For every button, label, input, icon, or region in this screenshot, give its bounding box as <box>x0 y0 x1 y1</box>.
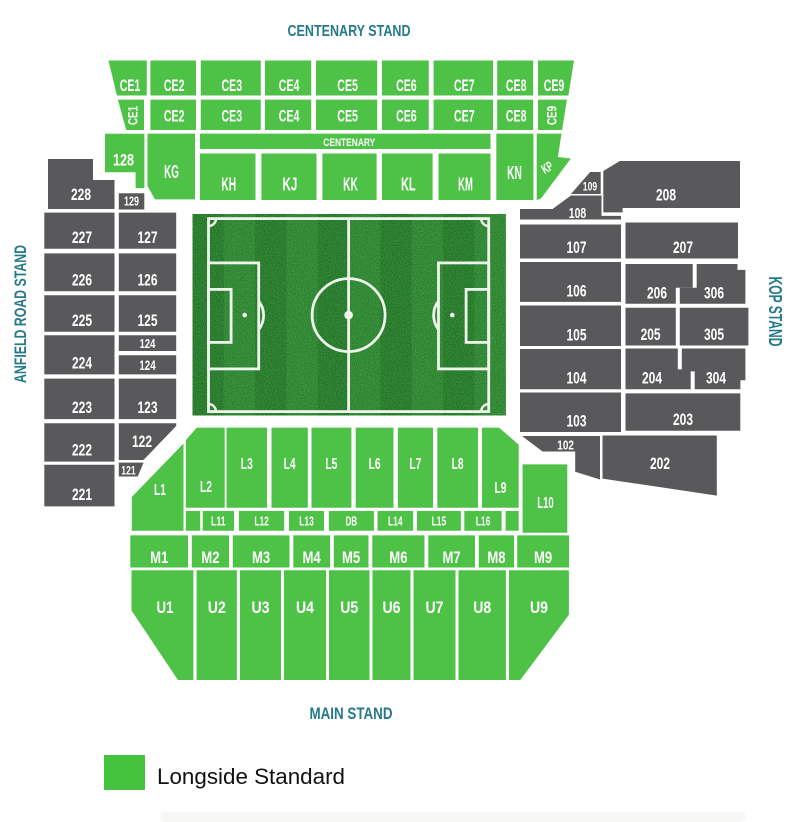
svg-text:L6: L6 <box>369 456 381 473</box>
svg-text:CE2: CE2 <box>164 77 185 95</box>
svg-text:KOP STAND: KOP STAND <box>765 277 785 347</box>
svg-text:KK: KK <box>343 175 358 195</box>
svg-text:L10: L10 <box>537 495 554 512</box>
svg-text:103: 103 <box>567 413 587 431</box>
svg-text:Longside Standard: Longside Standard <box>157 764 345 789</box>
svg-text:CE4: CE4 <box>279 77 300 95</box>
svg-text:108: 108 <box>569 206 586 222</box>
svg-text:L9: L9 <box>495 480 507 497</box>
svg-text:M6: M6 <box>389 548 407 567</box>
svg-text:208: 208 <box>656 187 676 205</box>
svg-text:U9: U9 <box>530 598 548 617</box>
svg-text:CENTENARY STAND: CENTENARY STAND <box>288 23 411 40</box>
svg-text:U1: U1 <box>157 598 174 617</box>
svg-text:KG: KG <box>164 162 179 182</box>
svg-text:206: 206 <box>647 285 667 303</box>
svg-text:U2: U2 <box>208 598 226 617</box>
svg-text:129: 129 <box>124 194 139 209</box>
svg-text:CE9: CE9 <box>544 77 565 95</box>
svg-text:M9: M9 <box>534 548 552 567</box>
svg-text:305: 305 <box>704 326 724 344</box>
svg-text:M2: M2 <box>201 548 219 567</box>
svg-text:CE2: CE2 <box>164 108 185 126</box>
svg-text:105: 105 <box>567 327 587 345</box>
svg-text:CE3: CE3 <box>222 77 243 95</box>
svg-text:CE7: CE7 <box>454 108 475 126</box>
svg-text:L3: L3 <box>241 456 253 473</box>
svg-text:L14: L14 <box>388 515 403 529</box>
svg-text:U6: U6 <box>383 598 401 617</box>
svg-text:U5: U5 <box>340 598 358 617</box>
svg-text:KL: KL <box>401 175 416 195</box>
svg-text:224: 224 <box>72 355 93 373</box>
svg-text:226: 226 <box>72 272 92 290</box>
svg-text:CE5: CE5 <box>337 108 358 126</box>
svg-text:KN: KN <box>507 163 522 183</box>
svg-text:U3: U3 <box>252 598 270 617</box>
svg-text:228: 228 <box>71 186 91 204</box>
svg-text:CENTENARY: CENTENARY <box>323 137 376 149</box>
svg-text:202: 202 <box>650 455 670 473</box>
svg-text:123: 123 <box>138 399 158 417</box>
svg-text:L4: L4 <box>284 456 296 473</box>
svg-text:L11: L11 <box>211 515 226 529</box>
svg-text:M4: M4 <box>303 548 322 567</box>
svg-text:MAIN STAND: MAIN STAND <box>310 704 393 723</box>
svg-text:CE9: CE9 <box>545 106 560 125</box>
svg-text:L13: L13 <box>299 515 314 529</box>
svg-text:KH: KH <box>221 175 236 195</box>
svg-text:225: 225 <box>72 312 92 330</box>
svg-text:223: 223 <box>72 399 92 417</box>
svg-text:122: 122 <box>132 433 152 451</box>
svg-text:L16: L16 <box>476 515 491 529</box>
svg-text:KJ: KJ <box>283 175 298 195</box>
svg-text:ANFIELD ROAD STAND: ANFIELD ROAD STAND <box>11 245 30 383</box>
svg-text:128: 128 <box>113 152 134 170</box>
svg-text:CE3: CE3 <box>222 108 243 126</box>
svg-text:CE4: CE4 <box>279 108 300 126</box>
svg-text:L5: L5 <box>325 456 337 473</box>
svg-text:L8: L8 <box>452 456 464 473</box>
svg-text:127: 127 <box>138 229 158 247</box>
svg-text:207: 207 <box>673 239 693 257</box>
svg-text:304: 304 <box>706 370 727 388</box>
svg-text:222: 222 <box>72 442 92 460</box>
svg-text:221: 221 <box>72 486 92 504</box>
svg-text:CE6: CE6 <box>396 108 417 126</box>
svg-text:203: 203 <box>673 411 693 429</box>
svg-text:CE5: CE5 <box>337 77 358 95</box>
svg-text:U8: U8 <box>473 598 491 617</box>
svg-text:M1: M1 <box>150 548 168 567</box>
svg-text:L12: L12 <box>254 515 269 529</box>
svg-text:121: 121 <box>121 464 136 478</box>
svg-text:M8: M8 <box>487 548 505 567</box>
svg-text:L7: L7 <box>409 456 421 473</box>
svg-text:106: 106 <box>567 282 587 300</box>
svg-text:CE7: CE7 <box>454 77 475 95</box>
svg-text:M5: M5 <box>342 548 360 567</box>
svg-text:DB: DB <box>346 515 358 529</box>
svg-text:109: 109 <box>583 180 598 194</box>
svg-text:L15: L15 <box>432 515 447 529</box>
svg-text:KM: KM <box>458 175 473 195</box>
svg-text:102: 102 <box>557 438 574 453</box>
svg-text:227: 227 <box>72 229 92 247</box>
svg-text:104: 104 <box>567 370 588 388</box>
svg-text:CE6: CE6 <box>396 77 417 95</box>
svg-text:CE1: CE1 <box>126 106 141 125</box>
svg-text:CE8: CE8 <box>506 108 527 126</box>
svg-text:125: 125 <box>138 312 158 330</box>
svg-text:CE1: CE1 <box>120 77 141 95</box>
svg-text:204: 204 <box>642 370 663 388</box>
svg-text:306: 306 <box>704 285 724 303</box>
svg-text:U4: U4 <box>296 598 314 617</box>
svg-text:L2: L2 <box>200 479 212 496</box>
svg-text:124: 124 <box>139 358 156 373</box>
svg-text:L1: L1 <box>154 482 166 499</box>
svg-text:205: 205 <box>641 326 661 344</box>
svg-text:M7: M7 <box>443 548 461 567</box>
svg-text:U7: U7 <box>426 598 444 617</box>
svg-text:126: 126 <box>138 272 158 290</box>
svg-text:CE8: CE8 <box>506 77 527 95</box>
svg-text:M3: M3 <box>252 548 270 567</box>
svg-text:107: 107 <box>567 239 587 257</box>
svg-text:124: 124 <box>140 336 156 351</box>
